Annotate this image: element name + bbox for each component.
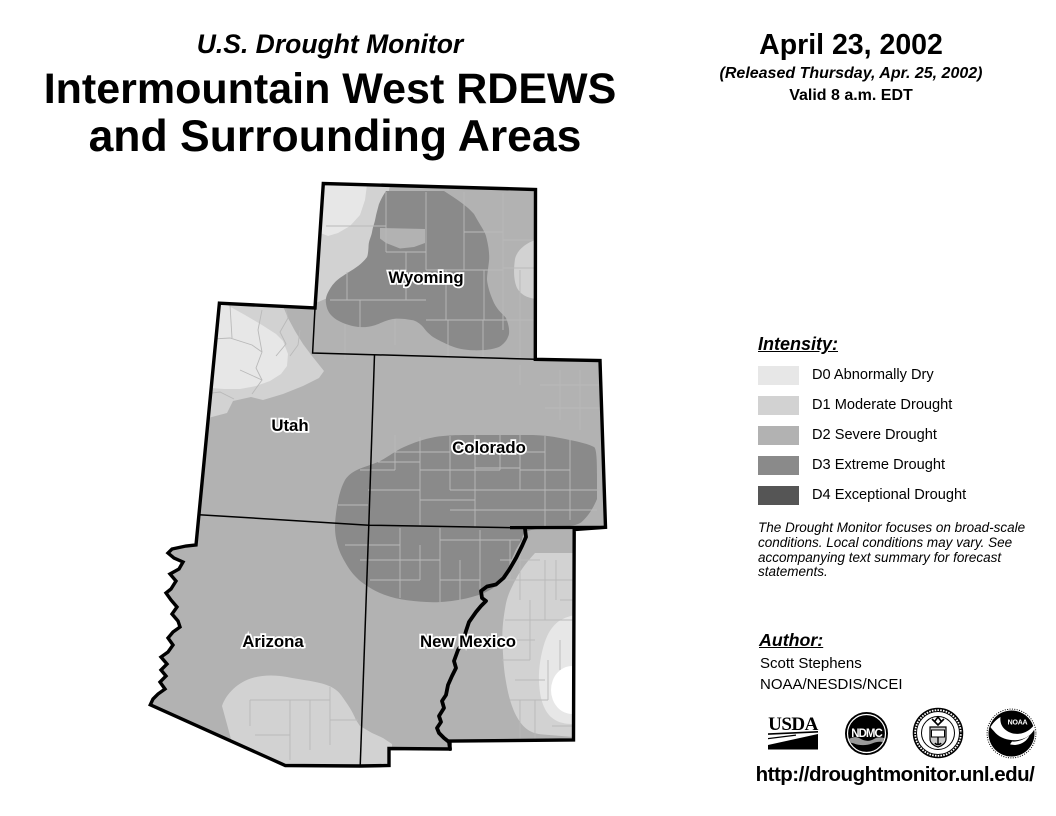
svg-text:Arizona: Arizona bbox=[242, 632, 304, 651]
svg-text:Utah: Utah bbox=[271, 416, 308, 435]
svg-text:New Mexico: New Mexico bbox=[420, 632, 516, 651]
svg-text:NDMC: NDMC bbox=[851, 728, 882, 740]
svg-text:Colorado: Colorado bbox=[452, 438, 526, 457]
svg-text:Wyoming: Wyoming bbox=[388, 268, 463, 287]
svg-text:NOAA: NOAA bbox=[1008, 720, 1028, 727]
